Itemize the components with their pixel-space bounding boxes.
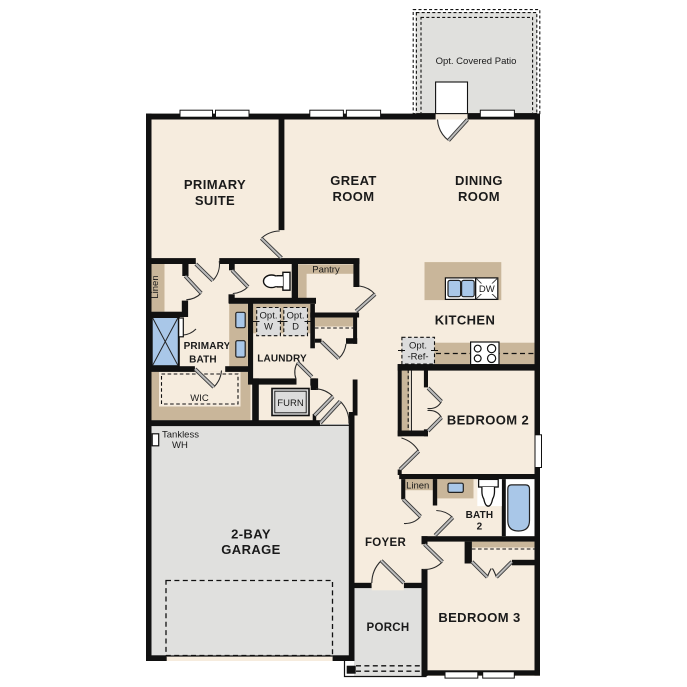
svg-text:WH: WH: [172, 440, 188, 451]
svg-text:PORCH: PORCH: [366, 622, 409, 634]
svg-text:D: D: [292, 322, 299, 333]
svg-text:BEDROOM 3: BEDROOM 3: [438, 610, 520, 625]
svg-text:DW: DW: [479, 284, 495, 295]
svg-text:BATH: BATH: [189, 355, 217, 366]
svg-text:Opt.: Opt.: [409, 341, 427, 352]
svg-text:WIC: WIC: [190, 393, 209, 404]
svg-text:-Ref-: -Ref-: [407, 352, 428, 363]
svg-text:Tankless: Tankless: [162, 430, 199, 441]
svg-text:ROOM: ROOM: [458, 189, 500, 204]
svg-text:DINING: DINING: [455, 173, 503, 188]
svg-text:2-BAY: 2-BAY: [231, 527, 271, 542]
svg-text:FOYER: FOYER: [365, 537, 407, 549]
svg-text:PRIMARY: PRIMARY: [184, 177, 246, 192]
svg-text:Opt.: Opt.: [287, 311, 305, 322]
svg-text:W: W: [264, 322, 273, 333]
svg-text:Linen: Linen: [150, 275, 161, 298]
svg-text:ROOM: ROOM: [332, 189, 374, 204]
svg-text:Opt. Covered Patio: Opt. Covered Patio: [436, 56, 517, 67]
svg-text:2: 2: [477, 522, 483, 533]
svg-text:FURN: FURN: [277, 398, 304, 409]
svg-text:Pantry: Pantry: [312, 265, 340, 276]
svg-text:Linen: Linen: [406, 480, 429, 491]
svg-text:KITCHEN: KITCHEN: [435, 313, 496, 328]
svg-text:SUITE: SUITE: [195, 193, 235, 208]
svg-text:GREAT: GREAT: [330, 173, 377, 188]
svg-text:PRIMARY: PRIMARY: [184, 341, 231, 352]
svg-text:BATH: BATH: [466, 510, 494, 521]
svg-text:GARAGE: GARAGE: [221, 542, 280, 557]
svg-text:BEDROOM 2: BEDROOM 2: [447, 413, 529, 428]
svg-text:Opt.: Opt.: [260, 311, 278, 322]
